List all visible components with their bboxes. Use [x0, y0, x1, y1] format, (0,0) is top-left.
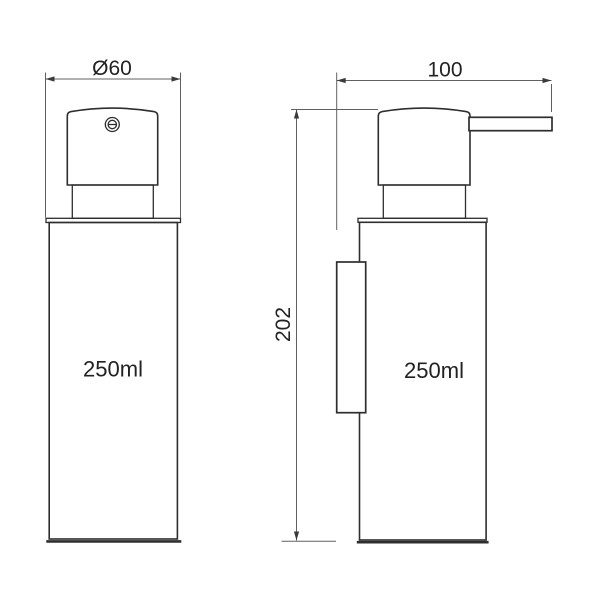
front-diameter-label: Ø60 [92, 57, 132, 80]
front-view: Ø60 250ml [46, 57, 182, 541]
pump-head-front [67, 108, 157, 185]
arrowhead-bottom [294, 532, 299, 541]
arrowhead-top [294, 110, 299, 119]
arrowhead-right [172, 76, 181, 81]
screw-icon [105, 118, 119, 132]
side-depth-dimension: 100 [337, 59, 552, 231]
pump-spout [469, 117, 552, 130]
arrowhead-left [337, 78, 346, 83]
pump-head-side [378, 108, 470, 185]
front-diameter-dimension: Ø60 [46, 57, 181, 218]
side-depth-label: 100 [427, 59, 462, 82]
arrowhead-left [46, 76, 55, 81]
technical-drawing: Ø60 250ml [0, 0, 600, 600]
wall-bracket [337, 262, 366, 413]
side-height-label: 202 [272, 307, 295, 342]
drawing-canvas: Ø60 250ml [0, 0, 600, 600]
pump-neck-side [383, 185, 465, 218]
front-capacity-label: 250ml [83, 357, 143, 382]
arrowhead-right [543, 78, 552, 83]
side-view: 100 202 [272, 59, 552, 543]
side-capacity-label: 250ml [404, 358, 464, 383]
pump-neck-front [72, 185, 153, 218]
